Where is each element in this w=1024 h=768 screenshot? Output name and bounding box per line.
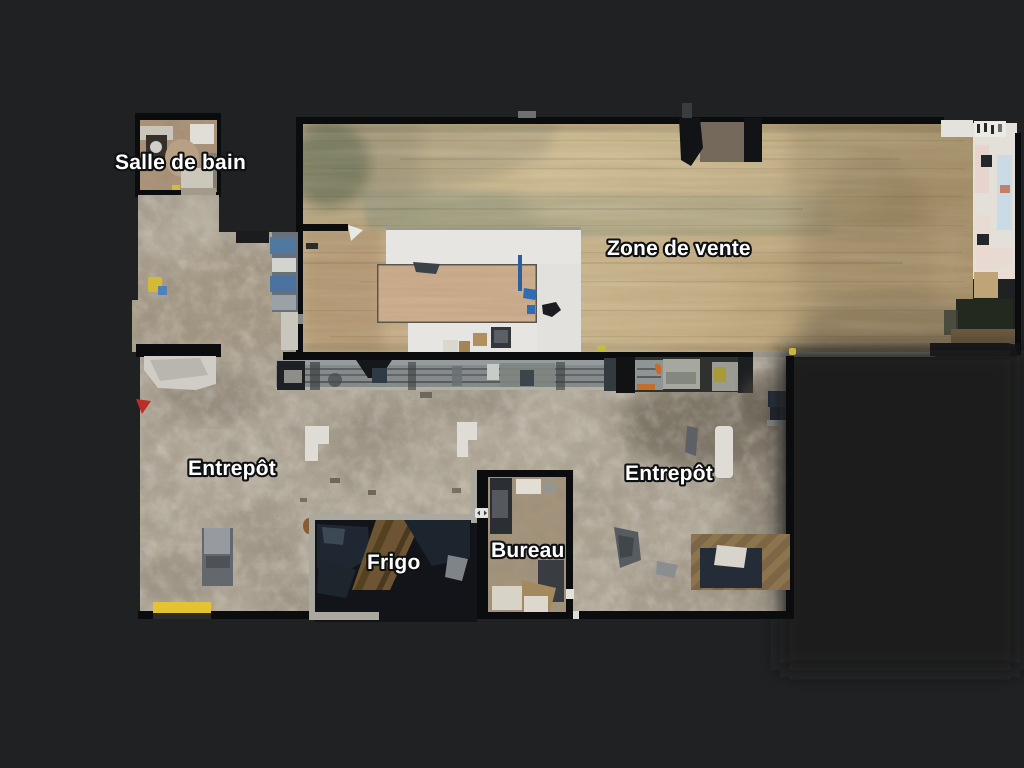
- svg-text:Entrepôt: Entrepôt: [188, 457, 276, 480]
- svg-text:Bureau: Bureau: [491, 539, 565, 562]
- svg-text:Salle de bain: Salle de bain: [115, 151, 246, 174]
- svg-text:Zone de vente: Zone de vente: [607, 237, 751, 260]
- svg-text:Frigo: Frigo: [367, 551, 421, 574]
- svg-text:Entrepôt: Entrepôt: [625, 462, 713, 485]
